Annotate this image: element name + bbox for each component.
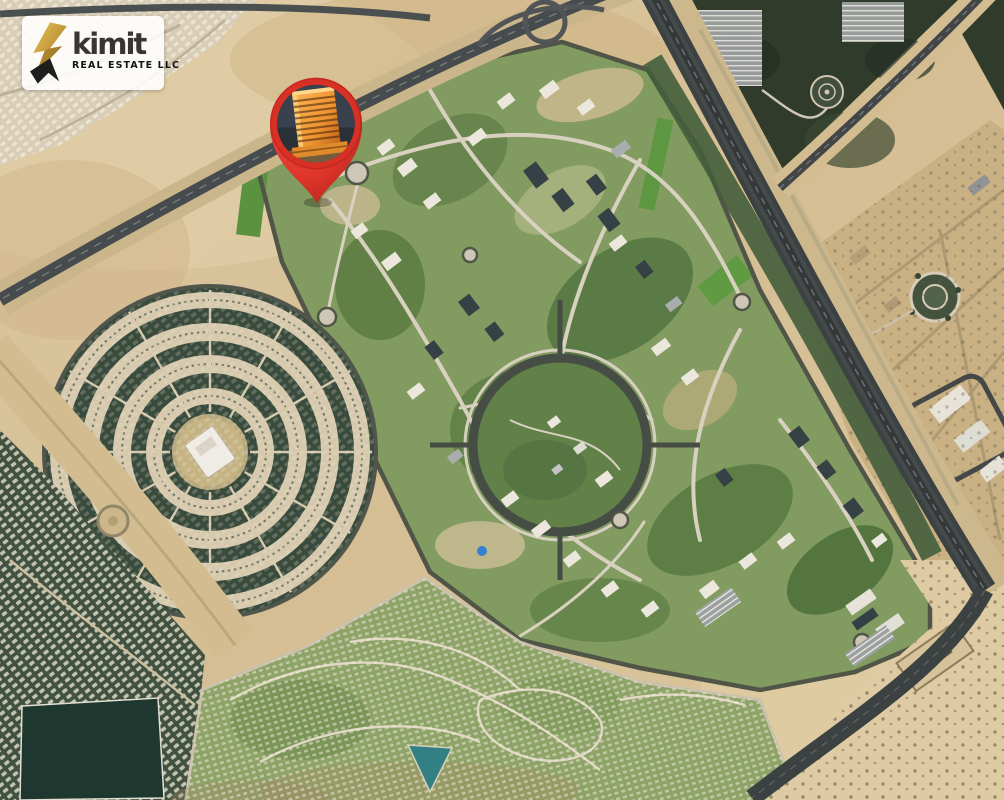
location-pin-icon: [256, 68, 376, 212]
kimit-logo-icon: [27, 21, 73, 85]
satellite-map-image: [0, 0, 1004, 800]
logo-subtitle-text: REAL ESTATE LLC: [72, 60, 162, 71]
logo-brand-text: kimit: [72, 30, 162, 58]
brand-logo: kimit REAL ESTATE LLC: [22, 16, 164, 90]
photo-tint-overlay: [0, 0, 1004, 800]
property-location-map: kimit REAL ESTATE LLC: [0, 0, 1004, 800]
